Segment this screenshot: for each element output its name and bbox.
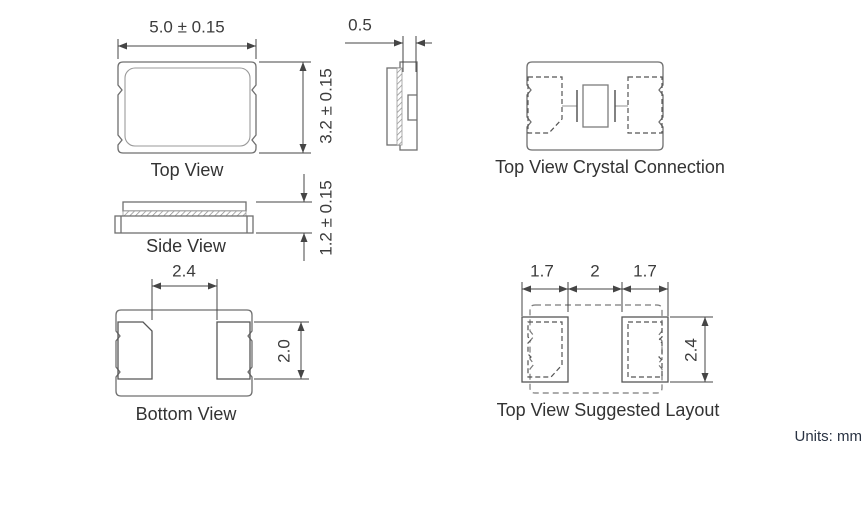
crystal-package-drawing: 5.0 ± 0.15 3.2 ± 0.15 Top View 0.5 Top V… (0, 0, 866, 510)
units-note: Units: mm (795, 429, 863, 444)
layout-right-pad-dim-text: 1.7 (633, 263, 657, 280)
bottom-view-pad-height-dim-text: 2.0 (276, 339, 293, 363)
layout-gap-dim-text: 2 (590, 263, 599, 280)
crystal-connection-label: Top View Crystal Connection (495, 158, 725, 176)
crystal-connection-drawing (527, 62, 663, 150)
bottom-right-pad (217, 322, 250, 379)
top-view-outline (118, 62, 256, 153)
layout-right-pad-dashed (628, 322, 662, 377)
bottom-left-pad (118, 322, 152, 379)
top-view-width-dim-text: 5.0 ± 0.15 (149, 19, 225, 36)
bottom-view-drawing (116, 279, 309, 396)
layout-right-land-pad (622, 317, 668, 382)
layout-left-pad-dashed (528, 322, 562, 377)
top-view-drawing (118, 39, 311, 153)
side-view-height-dim-text: 1.2 ± 0.15 (318, 180, 335, 256)
end-view-seal-hatch (397, 68, 402, 145)
bottom-view-pad-span-dim-text: 2.4 (172, 263, 196, 280)
crystal-connection-outline (527, 62, 663, 150)
suggested-layout-label: Top View Suggested Layout (497, 401, 720, 419)
side-view-label: Side View (146, 237, 226, 255)
bottom-view-outline (116, 310, 252, 396)
drawing-linework (0, 0, 866, 510)
crystal-blank (583, 85, 608, 127)
layout-left-pad-dim-text: 1.7 (530, 263, 554, 280)
side-view-lid (123, 202, 246, 211)
end-view-thickness-dim-text: 0.5 (348, 17, 372, 34)
right-pad-dashed (628, 77, 662, 133)
layout-left-land-pad (522, 317, 568, 382)
bottom-view-label: Bottom View (136, 405, 237, 423)
top-view-label: Top View (151, 161, 224, 179)
end-view-drawing (345, 36, 432, 150)
layout-package-outline-dashed (530, 305, 662, 393)
left-pad-dashed (528, 77, 562, 133)
side-view-seal-hatch (123, 211, 246, 216)
end-view-notch (408, 95, 417, 120)
side-view-base (115, 216, 253, 233)
top-view-lid (125, 68, 250, 146)
layout-pad-height-dim-text: 2.4 (683, 338, 700, 362)
top-view-height-dim-text: 3.2 ± 0.15 (318, 68, 335, 144)
